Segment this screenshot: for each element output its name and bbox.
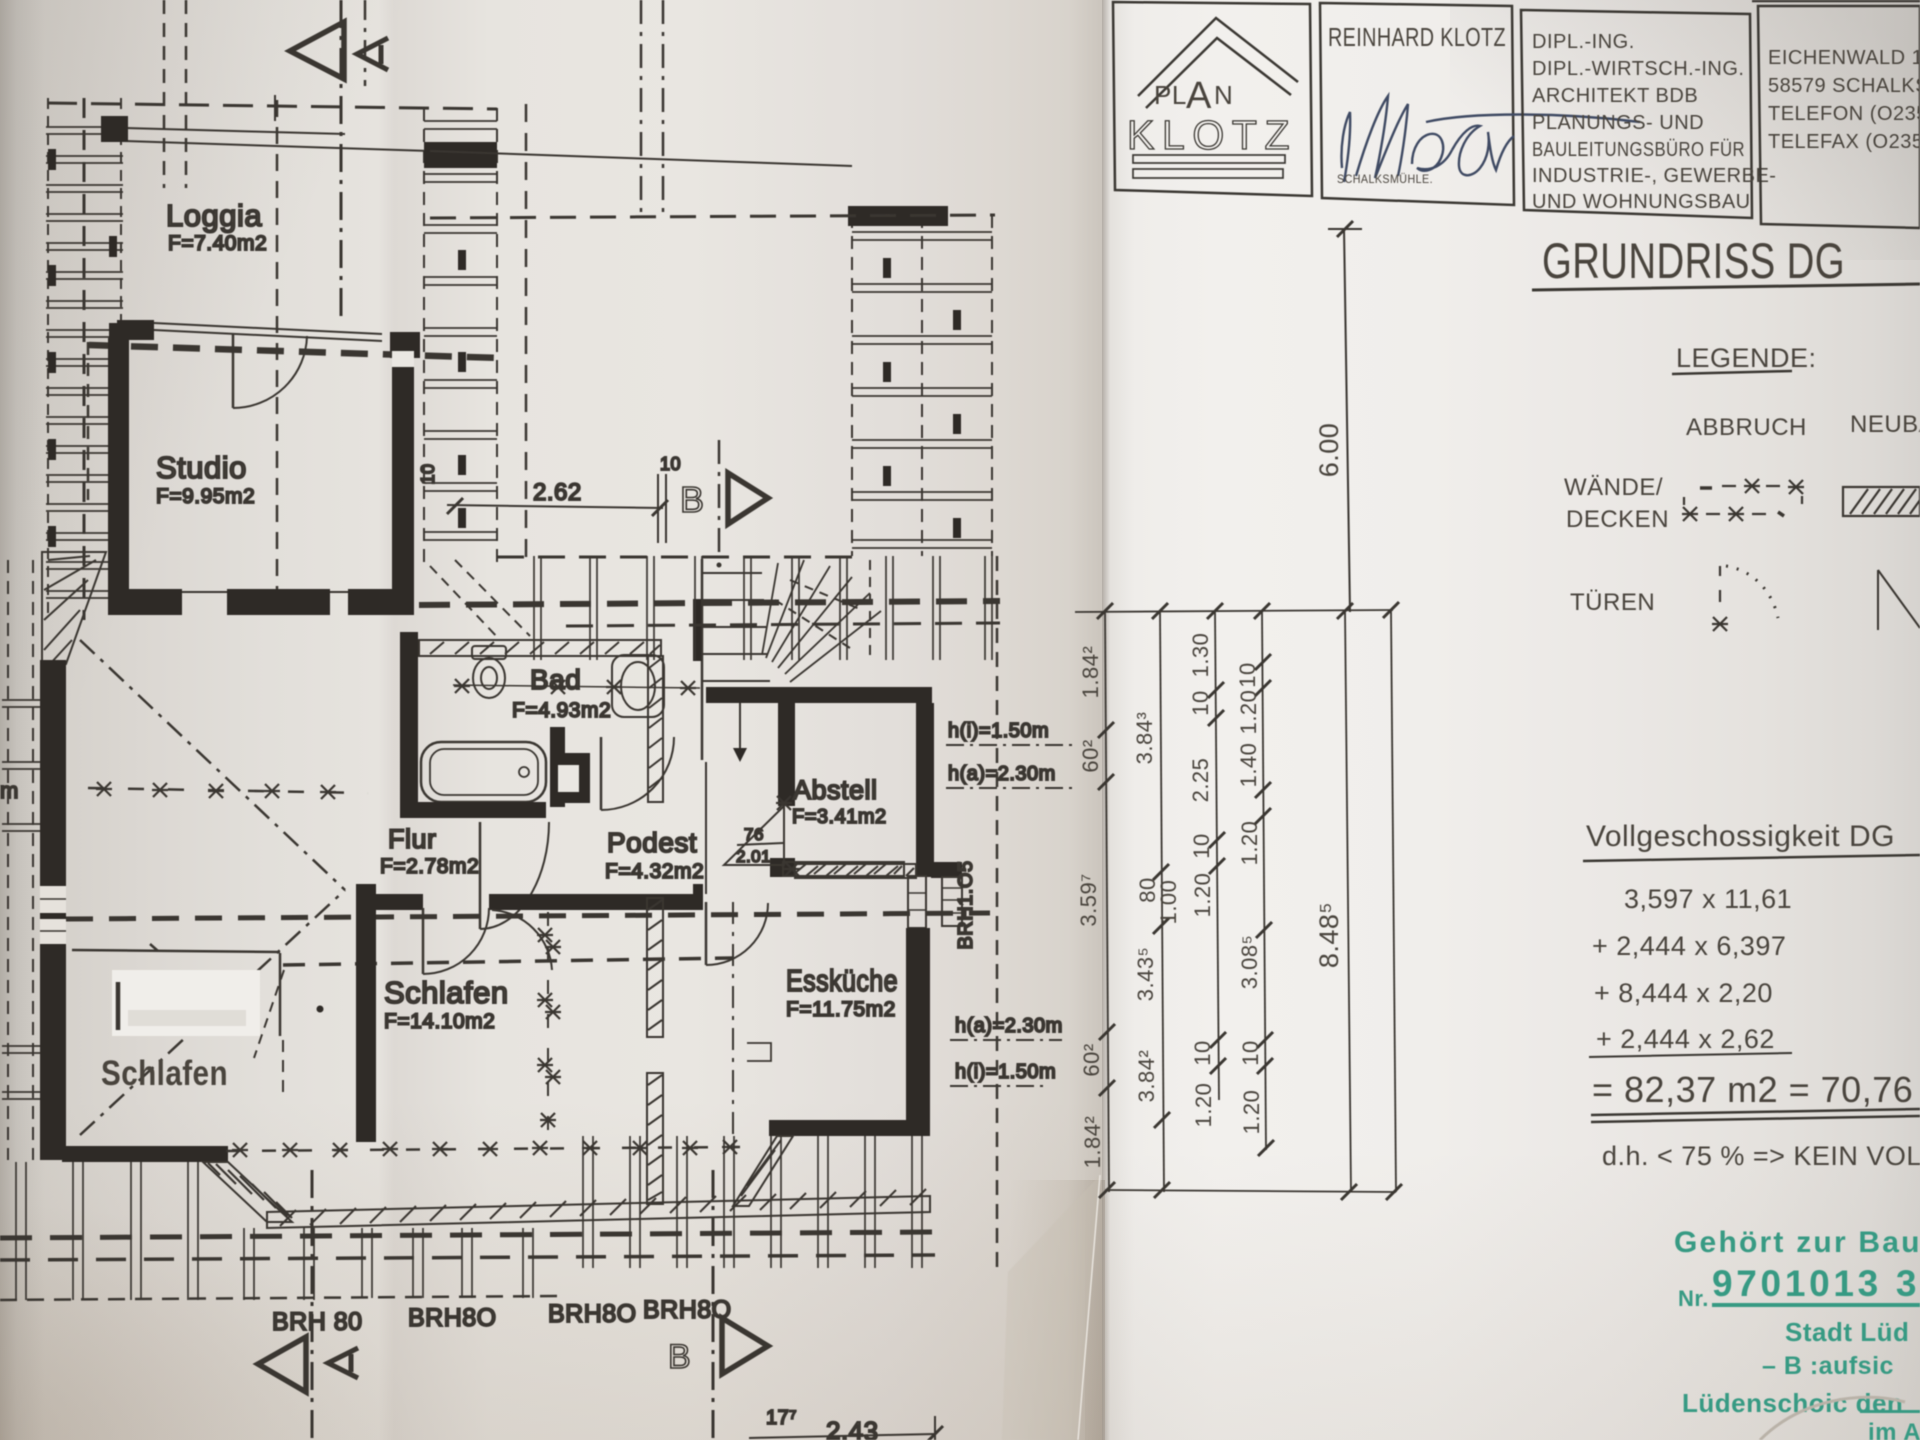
svg-text:h(i)=1.50m: h(i)=1.50m xyxy=(955,1061,1056,1083)
svg-text:1.20: 1.20 xyxy=(1239,1090,1264,1135)
svg-text:DECKEN: DECKEN xyxy=(1566,506,1669,533)
svg-text:8.48⁵: 8.48⁵ xyxy=(1314,902,1344,968)
svg-text:60²: 60² xyxy=(1079,1043,1104,1076)
svg-text:DIPL.-ING.: DIPL.-ING. xyxy=(1532,31,1635,53)
svg-text:PL: PL xyxy=(1154,80,1187,110)
svg-text:Podest: Podest xyxy=(607,827,697,858)
svg-text:– B :aufsic: – B :aufsic xyxy=(1762,1352,1894,1380)
svg-text:d.h. < 75 % => KEIN VOLLG: d.h. < 75 % => KEIN VOLLG xyxy=(1602,1141,1920,1171)
svg-text:58579 SCHALKSMÜ: 58579 SCHALKSMÜ xyxy=(1768,75,1920,97)
svg-text:F=7.40m2: F=7.40m2 xyxy=(168,232,267,255)
svg-text:h(i)=1.50m: h(i)=1.50m xyxy=(948,720,1049,742)
svg-text:1.40: 1.40 xyxy=(1236,743,1261,788)
svg-text:SCHALKSMÜHLE.: SCHALKSMÜHLE. xyxy=(1337,172,1433,186)
svg-text:2.62: 2.62 xyxy=(533,479,582,506)
svg-text:BRH1.O5: BRH1.O5 xyxy=(955,860,977,949)
svg-text:Lüdenschoic den: Lüdenschoic den xyxy=(1682,1388,1903,1418)
svg-text:m: m xyxy=(0,778,19,803)
svg-text:3.43⁵: 3.43⁵ xyxy=(1133,947,1158,1001)
svg-text:GRUNDRISS DG: GRUNDRISS DG xyxy=(1542,233,1845,289)
svg-text:10: 10 xyxy=(1188,690,1213,715)
svg-text:F=2.78m2: F=2.78m2 xyxy=(380,855,479,878)
svg-text:2.25: 2.25 xyxy=(1188,758,1213,803)
svg-text:KLOTZ: KLOTZ xyxy=(1127,112,1290,158)
svg-text:1.20: 1.20 xyxy=(1191,1083,1216,1128)
svg-text:= 82,37 m2 = 70,76: = 82,37 m2 = 70,76 xyxy=(1592,1069,1913,1110)
svg-text:ARCHITEKT BDB: ARCHITEKT BDB xyxy=(1532,85,1698,107)
svg-text:3.59⁷: 3.59⁷ xyxy=(1076,873,1101,926)
svg-text:F=3.41m2: F=3.41m2 xyxy=(792,806,887,828)
svg-text:BRH 80: BRH 80 xyxy=(272,1308,363,1336)
svg-text:Abstell: Abstell xyxy=(793,775,878,805)
svg-text:1.84²: 1.84² xyxy=(1080,1116,1105,1169)
svg-text:Loggia: Loggia xyxy=(166,198,262,233)
svg-text:1.30: 1.30 xyxy=(1188,633,1213,678)
svg-text:+ 2,444 x 6,397: + 2,444 x 6,397 xyxy=(1592,931,1786,961)
svg-text:F=11.75m2: F=11.75m2 xyxy=(786,998,896,1021)
svg-text:3.84³: 3.84³ xyxy=(1132,712,1157,765)
svg-text:F=14.10m2: F=14.10m2 xyxy=(384,1010,495,1033)
svg-text:F=4.93m2: F=4.93m2 xyxy=(512,699,611,722)
svg-text:NEUBA: NEUBA xyxy=(1850,411,1920,438)
svg-text:3.84²: 3.84² xyxy=(1134,1050,1159,1103)
svg-text:10: 10 xyxy=(1189,833,1214,858)
svg-text:10: 10 xyxy=(660,454,681,474)
svg-text:WÄNDE/: WÄNDE/ xyxy=(1564,474,1663,501)
svg-text:60²: 60² xyxy=(1078,739,1103,772)
svg-text:A: A xyxy=(1186,75,1212,117)
svg-text:BAULEITUNGSBÜRO FÜR: BAULEITUNGSBÜRO FÜR xyxy=(1532,139,1745,161)
svg-text:BRH8O: BRH8O xyxy=(548,1300,637,1328)
svg-text:3.08⁵: 3.08⁵ xyxy=(1237,935,1262,989)
svg-text:im Auf: im Auf xyxy=(1868,1419,1920,1440)
svg-text:17⁷: 17⁷ xyxy=(766,1407,797,1429)
svg-text:Stadt Lüd: Stadt Lüd xyxy=(1785,1317,1909,1347)
svg-text:DIPL.-WIRTSCH.-ING.: DIPL.-WIRTSCH.-ING. xyxy=(1532,58,1744,80)
svg-text:Essküche: Essküche xyxy=(786,963,898,998)
svg-text:EICHENWALD 1: EICHENWALD 1 xyxy=(1768,47,1920,69)
svg-text:Studio: Studio xyxy=(156,450,247,485)
svg-text:2.01: 2.01 xyxy=(736,847,771,866)
svg-text:N: N xyxy=(1214,80,1233,110)
svg-text:TELEFON (O235) 5: TELEFON (O235) 5 xyxy=(1768,103,1920,125)
svg-text:INDUSTRIE-, GEWERBE-: INDUSTRIE-, GEWERBE- xyxy=(1532,165,1776,187)
svg-text:10: 10 xyxy=(1190,1040,1215,1065)
svg-text:76: 76 xyxy=(744,825,764,844)
svg-text:B: B xyxy=(680,479,705,520)
svg-text:F=4.32m2: F=4.32m2 xyxy=(605,860,704,883)
svg-text:9701013 3: 9701013 3 xyxy=(1712,1263,1917,1304)
svg-text:1.20: 1.20 xyxy=(1190,873,1215,918)
svg-text:6.00: 6.00 xyxy=(1314,423,1344,478)
svg-text:F=9.95m2: F=9.95m2 xyxy=(156,485,255,508)
svg-text:1.20: 1.20 xyxy=(1237,821,1262,866)
svg-text:+ 8,444 x 2,20: + 8,444 x 2,20 xyxy=(1594,978,1773,1008)
svg-text:PLANUNGS- UND: PLANUNGS- UND xyxy=(1532,112,1704,134)
svg-text:B: B xyxy=(668,1338,691,1376)
svg-text:1.00: 1.00 xyxy=(1156,880,1181,925)
svg-text:Schlafen: Schlafen xyxy=(384,975,509,1010)
svg-text:h(a)=2.30m: h(a)=2.30m xyxy=(948,763,1056,785)
svg-text:TÜREN: TÜREN xyxy=(1570,589,1655,616)
svg-text:h(a)=2.30m: h(a)=2.30m xyxy=(955,1015,1063,1037)
svg-text:+ 2,444 x 2,62: + 2,444 x 2,62 xyxy=(1596,1024,1775,1054)
svg-text:1.84²: 1.84² xyxy=(1078,646,1103,699)
svg-text:Vollgeschossigkeit DG: Vollgeschossigkeit DG xyxy=(1586,820,1895,853)
svg-text:10: 10 xyxy=(1235,662,1260,687)
svg-text:10: 10 xyxy=(418,463,438,484)
svg-text:REINHARD KLOTZ: REINHARD KLOTZ xyxy=(1328,22,1506,52)
svg-text:1.20: 1.20 xyxy=(1236,690,1261,735)
svg-text:BRH8O: BRH8O xyxy=(643,1296,732,1324)
svg-text:Flur: Flur xyxy=(388,824,437,854)
svg-text:LEGENDE:: LEGENDE: xyxy=(1676,343,1817,373)
svg-text:Schlafen: Schlafen xyxy=(101,1054,228,1093)
svg-text:UND WOHNUNGSBAU: UND WOHNUNGSBAU xyxy=(1532,191,1751,213)
svg-text:10: 10 xyxy=(1238,1040,1263,1065)
svg-text:Nr.: Nr. xyxy=(1678,1286,1709,1311)
svg-text:TELEFAX (O235) 5: TELEFAX (O235) 5 xyxy=(1768,131,1920,153)
svg-text:3,597 x 11,61: 3,597 x 11,61 xyxy=(1624,884,1792,914)
svg-text:BRH8O: BRH8O xyxy=(408,1304,497,1332)
svg-text:ABBRUCH: ABBRUCH xyxy=(1686,414,1807,441)
svg-text:Gehört zur Bau: Gehört zur Bau xyxy=(1674,1226,1920,1259)
